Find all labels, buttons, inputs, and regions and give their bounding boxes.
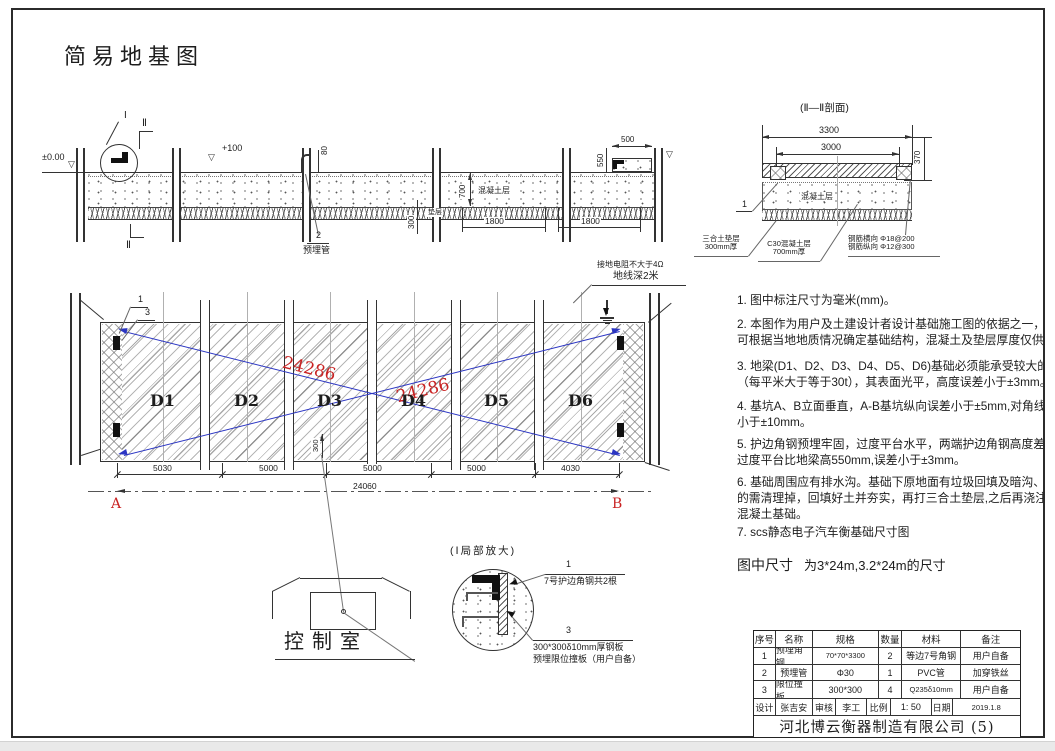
detail-i-title: (Ⅰ局部放大)	[450, 546, 516, 558]
block-label-d3: D3	[317, 392, 342, 410]
anchor-rod	[466, 592, 468, 601]
bom-cell: 2	[754, 665, 776, 681]
dim-line-1800b	[558, 227, 640, 228]
ground-underline	[592, 285, 686, 286]
road-edge	[658, 293, 660, 465]
angle-block-left	[770, 166, 786, 180]
outer-width-dim: 3300	[818, 126, 840, 135]
dim-line-3000	[776, 154, 899, 155]
level-zero-symbol: ▽	[68, 160, 75, 170]
design-label: 设计	[754, 699, 776, 715]
plan-leader-no-3: 3	[145, 308, 150, 318]
axis-line	[88, 491, 653, 492]
arrow-right	[611, 489, 619, 493]
room-outline	[300, 578, 382, 579]
road-edge	[79, 293, 81, 465]
note-7: 7. scs静态电子汽车衡基础尺寸图	[737, 524, 909, 540]
road-edge-right	[654, 148, 663, 242]
concrete-note: C30混凝土层 700mm厚	[758, 240, 820, 257]
detail-leader3-text-2: 预埋限位撞板（用户自备）	[533, 655, 641, 665]
arrow-down	[468, 199, 472, 206]
pipe-label: 预埋管	[303, 246, 330, 256]
section-concrete-label: 混凝土层	[800, 192, 834, 201]
pipe-item-no: 2	[316, 231, 321, 241]
center-line	[581, 292, 582, 462]
level-zero-label: ±0.00	[42, 153, 64, 163]
date-value: 2019.1.8	[953, 699, 1020, 715]
bom-cell: 用户自备	[961, 681, 1020, 698]
company-row: 河北博云衡器制造有限公司 (5)	[754, 716, 1020, 737]
bay-dim-2: 1800	[580, 217, 601, 226]
section-mark-line	[130, 237, 144, 238]
notes-block: 1. 图中标注尺寸为毫米(mm)。 2. 本图作为用户及土建设计者设计基础施工图…	[737, 288, 1043, 570]
edge-angle-glyph	[613, 160, 617, 169]
level-zero-line	[42, 172, 88, 173]
road-edge	[70, 293, 72, 465]
sign-row: 设计 张吉安 审核 李工 比例 1: 50 日期 2019.1.8	[754, 699, 1020, 716]
point-a-label: A	[111, 497, 121, 512]
seg-dim-5: 4030	[560, 464, 581, 473]
page-title: 简易地基图	[64, 46, 204, 70]
center-line	[163, 292, 164, 462]
pipe-no-underline	[307, 243, 329, 244]
ext-line	[912, 137, 932, 138]
bay-dim-1: 1800	[484, 217, 505, 226]
ext-line	[762, 125, 763, 165]
bom-header-spec: 规格	[813, 631, 880, 647]
end-zone-right	[623, 324, 643, 460]
arrow-left	[762, 135, 769, 139]
inner-width-dim: 3000	[820, 143, 842, 152]
label-underline	[275, 659, 415, 660]
dim-chain-line	[117, 474, 620, 475]
section-ii-title: (Ⅱ—Ⅱ剖面)	[800, 103, 849, 115]
leader-underline	[545, 574, 625, 575]
room-outline	[272, 591, 273, 619]
leader-underline	[736, 211, 752, 212]
anchor-rod	[462, 616, 464, 627]
detail-angle	[472, 575, 500, 583]
angle-block-right	[896, 166, 912, 180]
section-mark-line	[139, 131, 153, 132]
pipe-glyph	[301, 154, 310, 172]
bom-row-1: 1 预埋角钢 70*70*3300 2 等边7号角钢 用户自备	[754, 648, 1020, 665]
ground-note-1: 接地电阻不大于4Ω	[597, 261, 663, 270]
designer-name: 张吉安	[776, 699, 813, 715]
dim-line-3300	[762, 137, 912, 138]
leader-line	[848, 256, 940, 257]
note-1: 1. 图中标注尺寸为毫米(mm)。	[737, 292, 896, 308]
detail-leader3-no: 3	[566, 626, 571, 636]
end-height-dim: 550	[596, 153, 605, 168]
ext-line	[640, 208, 641, 232]
pipe-height-dim: 80	[321, 146, 330, 155]
bom-cell: 1	[879, 665, 902, 681]
section-mark-bottom: Ⅱ	[126, 240, 131, 251]
bom-cell: 1	[754, 648, 776, 664]
leader-line	[694, 256, 748, 257]
total-dim: 24060	[352, 482, 378, 491]
section-mark-line	[139, 131, 140, 149]
dim-line-300	[417, 200, 418, 234]
bom-cell: 预埋管	[776, 665, 813, 681]
leader-line	[758, 261, 820, 262]
arrow-right	[892, 152, 899, 156]
note-3: 3. 地梁(D1、D2、D3、D4、D5、D6)基础必须能承受较大的冲击和 （每…	[737, 358, 1043, 390]
ground-tick	[600, 317, 614, 319]
ext-line	[904, 180, 932, 181]
bom-cell: 加穿铁丝	[961, 665, 1020, 681]
limit-plate	[113, 336, 120, 350]
ext-line	[462, 208, 463, 232]
detail-leader3-text-1: 300*300δ10mm厚钢板	[533, 643, 624, 653]
bom-cell: 用户自备	[961, 648, 1020, 664]
concrete-depth-dim: 700	[458, 184, 467, 199]
bom-cell: PVC管	[902, 665, 962, 681]
size-note-label: 图中尺寸	[737, 558, 793, 573]
bom-cell: 3	[754, 681, 776, 698]
dim-line-1800a	[462, 227, 545, 228]
deck-separator	[284, 300, 294, 470]
cushion-note: 三合土垫层 300mm厚	[694, 235, 748, 252]
block-label-d4: D4	[401, 392, 426, 410]
concrete-layer-label: 混凝土层	[477, 186, 511, 195]
rebar-note: 钢筋横向 Φ18@200 钢筋纵向 Φ12@300	[848, 235, 940, 252]
ground-tick	[605, 323, 610, 324]
height-dim-370: 370	[913, 150, 922, 165]
bom-cell: 等边7号角钢	[902, 648, 962, 664]
section-mark-line	[130, 224, 131, 238]
bom-cell: 预埋角钢	[776, 648, 813, 664]
note-2: 2. 本图作为用户及土建设计者设计基础施工图的依据之一，用户 可根据当地地质情况…	[737, 316, 1043, 348]
company-name: 河北博云衡器制造有限公司 (5)	[754, 716, 1020, 737]
section-mark-top: Ⅱ	[142, 118, 147, 129]
arrow-right	[645, 144, 652, 148]
control-room-label: 控制室	[284, 630, 368, 652]
arrow-left	[776, 152, 783, 156]
bom-header-name: 名称	[776, 631, 813, 647]
limit-plate	[617, 336, 624, 350]
bom-header-mat: 材料	[902, 631, 962, 647]
anchor-rod	[462, 616, 498, 618]
point-b-label: B	[612, 497, 622, 512]
date-label: 日期	[932, 699, 953, 715]
seg-dim-1: 5030	[152, 464, 173, 473]
arrow-up	[320, 434, 324, 441]
ext-line	[558, 208, 559, 232]
arrow-right	[905, 135, 912, 139]
note-4: 4. 基坑A、B立面垂直，A-B基坑纵向误差小于±5mm,对角线误差 小于±10…	[737, 398, 1043, 430]
ground-tick	[603, 320, 612, 321]
bom-row-3: 3 限位撞板 300*300 4 Q235δ10mm 用户自备	[754, 681, 1020, 699]
end-width-dim: 500	[620, 135, 635, 144]
note-6: 6. 基础周围应有排水沟。基础下原地面有垃圾回填及暗沟、暗管 的需清理掉，回填好…	[737, 474, 1043, 522]
deck-separator	[451, 300, 461, 470]
level-plus100-symbol: ▽	[208, 153, 215, 163]
center-line	[837, 156, 838, 226]
seg-dim-4: 5000	[466, 464, 487, 473]
bom-header-row: 序号 名称 规格 数量 材料 备注	[754, 631, 1020, 648]
arrow-left	[117, 489, 125, 493]
joint-post	[432, 148, 441, 242]
bom-header-qty: 数量	[879, 631, 902, 647]
joint-post	[172, 148, 181, 242]
center-line	[497, 292, 498, 462]
bom-cell: 70*70*3300	[813, 648, 880, 664]
bom-cell: Q235δ10mm	[902, 681, 962, 698]
auditor-name: 李工	[836, 699, 867, 715]
pipe-offset-dim: 300	[311, 438, 320, 453]
bottom-strip	[0, 741, 1055, 751]
scale-value: 1: 50	[891, 699, 932, 715]
level-symbol-right: ▽	[666, 150, 673, 160]
anchor-rod	[466, 592, 498, 594]
arrow-left	[612, 144, 619, 148]
level-plus100-label: +100	[222, 144, 242, 154]
limit-plate	[113, 423, 120, 437]
deck-separator	[367, 300, 377, 470]
audit-label: 审核	[813, 699, 837, 715]
bom-cell: 4	[879, 681, 902, 698]
leader-underline	[138, 320, 155, 321]
deck-separator	[534, 300, 544, 470]
bom-cell: 2	[879, 648, 902, 664]
limit-plate	[617, 423, 624, 437]
bom-header-remark: 备注	[961, 631, 1020, 647]
scale-label: 比例	[867, 699, 891, 715]
dim-line-370	[924, 137, 925, 180]
detail-i-circle	[100, 144, 138, 182]
arrow-up	[468, 173, 472, 180]
ground-note-2: 地线深2米	[613, 271, 659, 282]
plan-leader-no-1: 1	[138, 295, 143, 305]
center-line	[247, 292, 248, 462]
joint-post	[76, 148, 85, 242]
detail-leader1-text: 7号护边角钢共2根	[544, 577, 617, 587]
note-5: 5. 护边角钢预埋牢固，过度平台水平，两端护边角钢高度差<4mm 过度平台比地梁…	[737, 436, 1043, 468]
dim-line-550	[606, 148, 607, 172]
detail-i-mark: I	[124, 110, 127, 121]
edge-angle-glyph	[122, 152, 128, 163]
leader-underline	[533, 640, 633, 641]
bom-row-2: 2 预埋管 Φ30 1 PVC管 加穿铁丝	[754, 665, 1020, 682]
room-outline	[410, 591, 411, 619]
bom-cell: 限位撞板	[776, 681, 813, 698]
drawing-sheet: 简易地基图 ±0.00 ▽ I Ⅱ Ⅱ ▽ +100	[0, 0, 1055, 751]
center-line	[414, 292, 415, 462]
cushion-layer-label: 垫层	[427, 208, 443, 217]
block-label-d1: D1	[150, 392, 175, 410]
leader-no-1: 1	[742, 200, 747, 210]
bom-table: 序号 名称 规格 数量 材料 备注 1 预埋角钢 70*70*3300 2 等边…	[753, 630, 1021, 738]
detail-leader1-no: 1	[566, 560, 571, 570]
seg-dim-2: 5000	[258, 464, 279, 473]
size-note-value: 为3*24m,3.2*24m的尺寸	[804, 559, 946, 573]
ground-arrow	[603, 308, 609, 316]
ext-line	[545, 208, 546, 232]
cushion-depth-dim: 300	[407, 215, 416, 230]
bom-header-seq: 序号	[754, 631, 776, 647]
bom-cell: Φ30	[813, 665, 880, 681]
block-label-d5: D5	[484, 392, 509, 410]
seg-dim-3: 5000	[362, 464, 383, 473]
block-label-d2: D2	[234, 392, 259, 410]
pipe-dim-line	[318, 150, 319, 172]
bom-cell: 300*300	[813, 681, 880, 698]
deck-separator	[200, 300, 210, 470]
block-label-d6: D6	[568, 392, 593, 410]
